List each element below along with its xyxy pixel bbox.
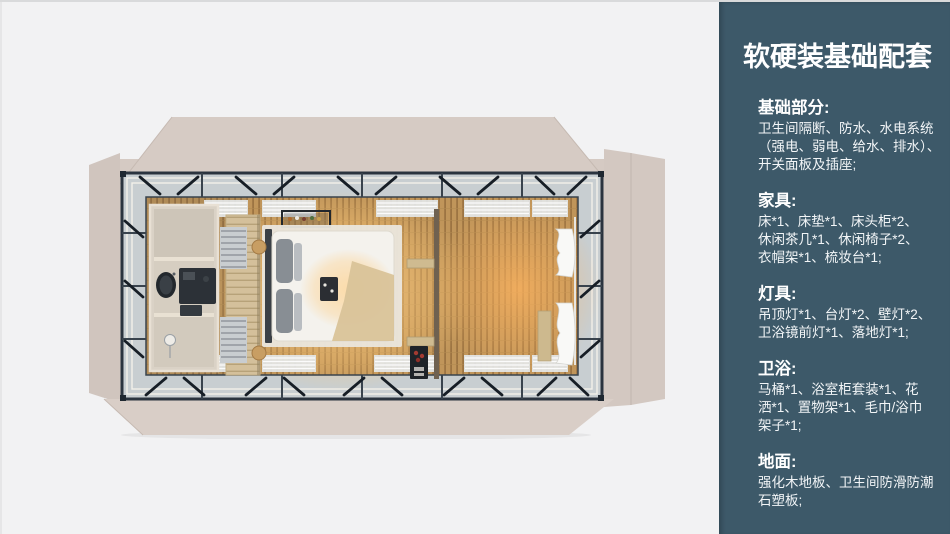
- toilet: [180, 305, 202, 316]
- spec-section-bathroom: 卫浴: 马桶*1、浴室柜套装*1、花 洒*1、置物架*1、毛巾/浴巾 架子*1;: [743, 359, 936, 435]
- curtain: [556, 303, 575, 365]
- section-line: 洒*1、置物架*1、毛巾/浴巾: [758, 399, 936, 417]
- section-heading: 地面:: [758, 452, 936, 473]
- sidebar-title: 软硬装基础配套: [743, 40, 936, 74]
- bed: [252, 225, 402, 360]
- section-line: 卫生间隔断、防水、水电系统: [758, 120, 936, 138]
- pillow: [276, 289, 293, 333]
- section-line: 强化木地板、卫生间防滑防潮: [758, 474, 936, 492]
- section-heading: 灯具:: [758, 284, 936, 305]
- spec-section-furniture: 家具: 床*1、床垫*1、床头柜*2、 休闲茶几*1、休闲椅子*2、 衣帽架*1…: [743, 191, 936, 267]
- bed-tray: [320, 277, 338, 301]
- section-heading: 基础部分:: [758, 98, 936, 119]
- section-heading: 卫浴:: [758, 359, 936, 380]
- bathroom-area: [150, 205, 218, 371]
- section-line: 开关面板及插座;: [758, 156, 936, 174]
- rattan-stool: [252, 346, 266, 360]
- spec-section-basics: 基础部分: 卫生间隔断、防水、水电系统 （强电、弱电、给水、排水）、 开关面板及…: [743, 98, 936, 174]
- floor-plan-render: [86, 113, 666, 439]
- section-line: （强电、弱电、给水、排水）、: [758, 138, 936, 156]
- section-line: 架子*1;: [758, 417, 936, 435]
- section-line: 休闲茶几*1、休闲椅子*2、: [758, 231, 936, 249]
- wall-shelf: [407, 337, 434, 346]
- spec-section-flooring: 地面: 强化木地板、卫生间防滑防潮 石塑板;: [743, 452, 936, 510]
- section-line: 石塑板;: [758, 492, 936, 510]
- section-line: 床*1、床垫*1、床头柜*2、: [758, 213, 936, 231]
- shower-head: [165, 335, 176, 346]
- rattan-stool: [252, 240, 266, 254]
- wall-shelf: [407, 259, 434, 268]
- section-line: 衣帽架*1、梳妆台*1;: [758, 249, 936, 267]
- dressing-bench: [538, 311, 551, 361]
- section-line: 卫浴镜前灯*1、落地灯*1;: [758, 324, 936, 342]
- section-line: 吊顶灯*1、台灯*2、壁灯*2、: [758, 306, 936, 324]
- pillow: [276, 239, 293, 283]
- spec-section-lighting: 灯具: 吊顶灯*1、台灯*2、壁灯*2、 卫浴镜前灯*1、落地灯*1;: [743, 284, 936, 342]
- section-line: 马桶*1、浴室柜套装*1、花: [758, 381, 936, 399]
- info-sidebar: 软硬装基础配套 基础部分: 卫生间隔断、防水、水电系统 （强电、弱电、给水、排水…: [719, 2, 950, 534]
- section-heading: 家具:: [758, 191, 936, 212]
- slide: 软硬装基础配套 基础部分: 卫生间隔断、防水、水电系统 （强电、弱电、给水、排水…: [0, 2, 950, 534]
- floor-plan-area: [0, 2, 719, 534]
- bar-shelf: [282, 211, 330, 227]
